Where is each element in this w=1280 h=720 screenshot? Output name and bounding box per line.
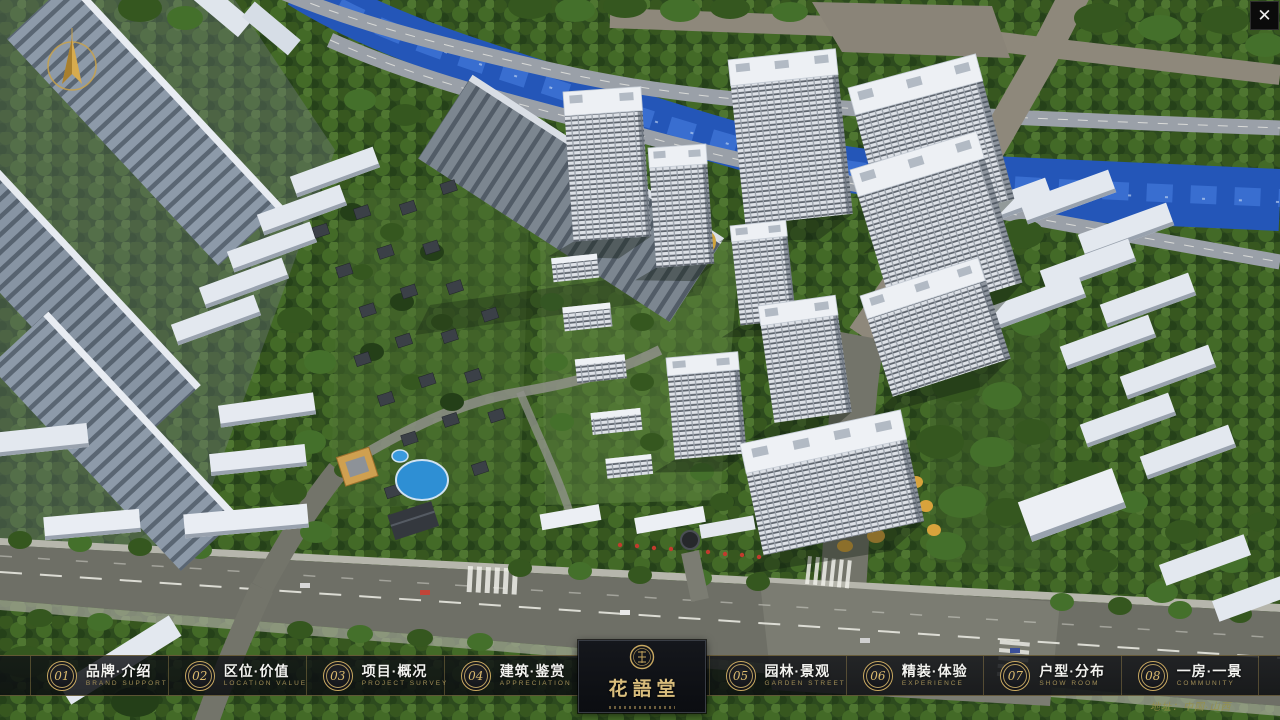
nav-label: 一房·一景 [1177, 664, 1243, 678]
nav-number: 04 [468, 669, 483, 683]
nav-sublabel: APPRECIATION [500, 681, 572, 688]
nav-label: 项目·概况 [362, 664, 449, 678]
nav-label: 品牌·介绍 [86, 664, 168, 678]
nav-item-architecture[interactable]: 04 建筑·鉴赏APPRECIATION [444, 656, 581, 695]
nav-number: 08 [1145, 669, 1160, 683]
close-button[interactable]: ✕ [1250, 1, 1279, 30]
nav-badge: 02 [185, 661, 215, 691]
nav-badge: 03 [323, 661, 353, 691]
navbar-spacer [0, 656, 30, 695]
nav-badge: 01 [47, 661, 77, 691]
nav-label: 区位·价值 [224, 664, 307, 678]
nav-label: 园林·景观 [765, 664, 846, 678]
navbar-end-divider [1258, 656, 1280, 695]
nav-badge: 06 [863, 661, 893, 691]
nav-item-garden-landscape[interactable]: 05 园林·景观GARDEN STREET [709, 656, 846, 695]
nav-item-finishing-experience[interactable]: 06 精装·体验EXPERIENCE [846, 656, 983, 695]
presentation-stage: ✕ 01 品牌·介绍BRAND SUPPORT 02 区位·价值LOCATION… [0, 0, 1280, 720]
nav-sublabel: EXPERIENCE [902, 681, 968, 688]
logo-subtext [609, 706, 675, 709]
nav-number: 01 [54, 669, 69, 683]
nav-badge: 04 [461, 661, 491, 691]
nav-badge: 08 [1138, 661, 1168, 691]
aerial-render [0, 0, 1280, 720]
nav-item-brand-intro[interactable]: 01 品牌·介绍BRAND SUPPORT [30, 656, 168, 695]
nav-item-floorplan-distribution[interactable]: 07 户型·分布SHOW ROOM [983, 656, 1120, 695]
compass-icon [42, 26, 102, 98]
nav-badge: 07 [1000, 661, 1030, 691]
address-text: 地址：中国·山西 [1150, 698, 1231, 713]
nav-label: 户型·分布 [1039, 664, 1105, 678]
nav-label: 精装·体验 [902, 664, 968, 678]
logo-panel[interactable]: 花語堂 [578, 640, 706, 713]
seal-icon [629, 644, 655, 670]
nav-sublabel: SHOW ROOM [1039, 681, 1105, 688]
logo-title: 花語堂 [603, 674, 680, 701]
nav-number: 06 [870, 669, 885, 683]
nav-sublabel: BRAND SUPPORT [86, 681, 168, 688]
close-icon: ✕ [1257, 7, 1271, 24]
nav-label: 建筑·鉴赏 [500, 664, 572, 678]
nav-sublabel: PROJECT SURVEY [362, 681, 449, 688]
nav-number: 05 [733, 669, 748, 683]
nav-badge: 05 [726, 661, 756, 691]
nav-sublabel: LOCATION VALUE [224, 681, 307, 688]
nav-sublabel: COMMUNITY [1177, 681, 1243, 688]
nav-item-project-survey[interactable]: 03 项目·概况PROJECT SURVEY [306, 656, 444, 695]
nav-number: 02 [192, 669, 207, 683]
nav-number: 03 [330, 669, 345, 683]
nav-item-location-value[interactable]: 02 区位·价值LOCATION VALUE [168, 656, 306, 695]
nav-item-room-view[interactable]: 08 一房·一景COMMUNITY [1121, 656, 1258, 695]
nav-number: 07 [1008, 669, 1023, 683]
nav-sublabel: GARDEN STREET [765, 681, 846, 688]
